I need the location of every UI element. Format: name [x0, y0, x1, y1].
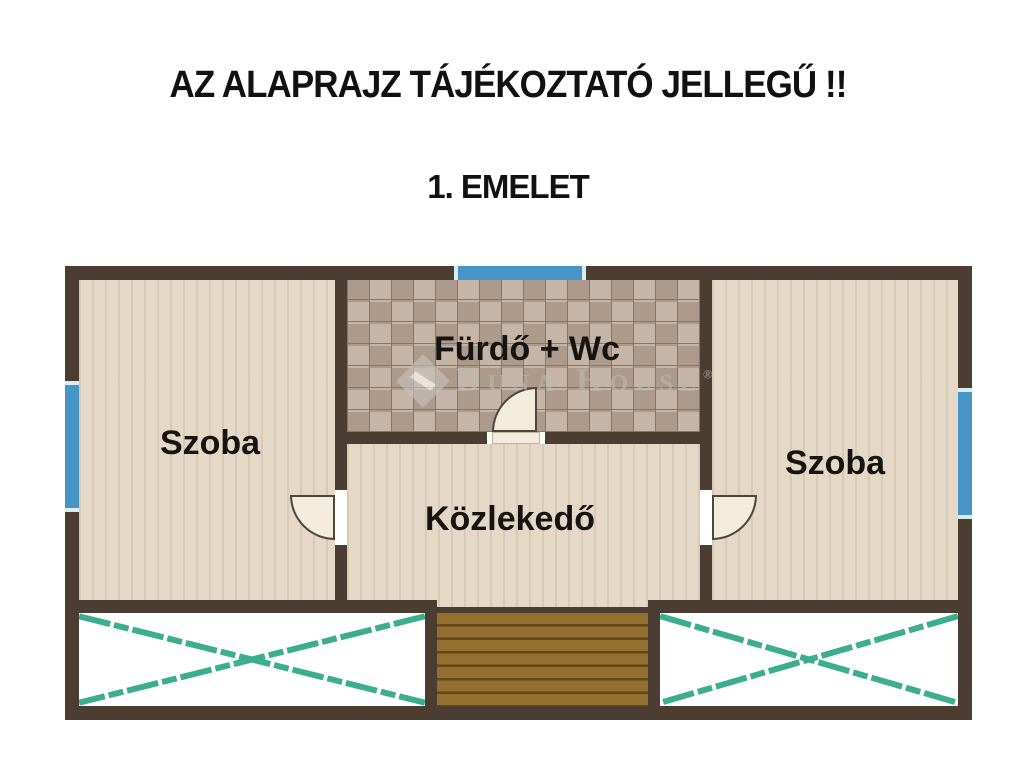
label-room-right: Szoba	[735, 444, 935, 483]
staircase	[437, 613, 648, 706]
window-top-cap-left	[454, 266, 458, 280]
wall-leftroom-upper	[335, 280, 347, 495]
window-left	[65, 385, 79, 508]
door-right-jamb-bottom	[700, 540, 712, 545]
floor-title: 1. EMELET	[0, 168, 1016, 206]
wall-bottom	[65, 706, 972, 720]
window-right-cap-bottom	[958, 515, 972, 519]
wall-bathroom-left-seg	[347, 432, 492, 444]
logo-slash	[410, 371, 436, 390]
label-room-left: Szoba	[110, 424, 310, 463]
window-right-cap-top	[958, 388, 972, 392]
window-top-cap-right	[582, 266, 586, 280]
door-right-jamb-top	[700, 490, 712, 495]
wall-bottom-left-seg	[65, 600, 437, 613]
hatched-area-right	[660, 613, 958, 706]
floorplan-page: AZ ALAPRAJZ TÁJÉKOZTATÓ JELLEGŰ !! 1. EM…	[0, 0, 1016, 768]
registered-mark: ®	[703, 367, 713, 382]
disclaimer-title: AZ ALAPRAJZ TÁJÉKOZTATÓ JELLEGŰ !!	[41, 64, 976, 107]
label-bathroom: Fürdő + Wc	[407, 330, 647, 369]
door-bath-jamb-right	[540, 432, 545, 444]
label-hallway: Közlekedő	[390, 500, 630, 539]
door-left-jamb-top	[335, 490, 347, 495]
wall-stair-left	[425, 600, 437, 706]
wall-bottom-right-seg	[648, 600, 972, 613]
stair-top-edge	[437, 607, 648, 613]
room-right-floor	[712, 280, 958, 600]
floorplan-drawing: Duna House® Szoba Fürdő + Wc Közlekedő S…	[65, 266, 972, 720]
hatch-x-left	[79, 613, 425, 706]
window-top	[458, 266, 582, 280]
wall-stair-right	[648, 600, 660, 706]
door-left-jamb-bottom	[335, 540, 347, 545]
wall-bathroom-right-seg	[540, 432, 700, 444]
door-bath-sill	[492, 432, 540, 444]
window-right	[958, 392, 972, 515]
window-left-cap-bottom	[65, 508, 79, 512]
hatched-area-left	[79, 613, 425, 706]
window-left-cap-top	[65, 381, 79, 385]
hatch-x-right	[660, 613, 958, 706]
